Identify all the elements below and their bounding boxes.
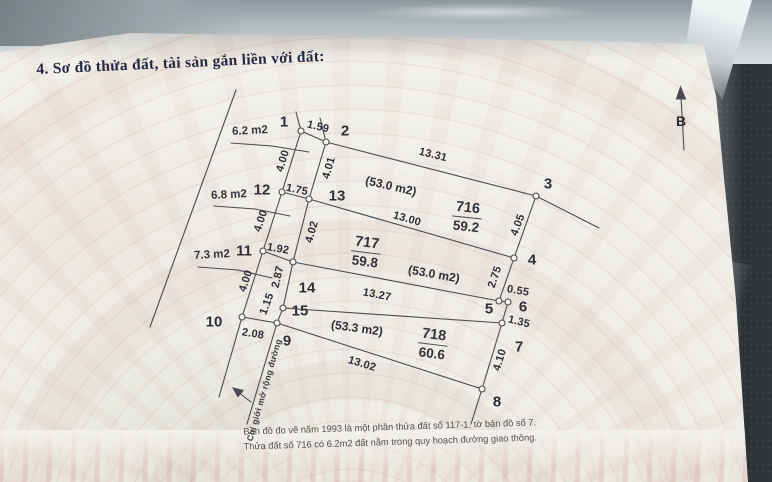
- vertex-label-11: 11: [236, 243, 252, 260]
- road-edge-line: [150, 90, 236, 327]
- vertex-label-5: 5: [485, 301, 493, 318]
- vertex-label-10: 10: [206, 314, 223, 331]
- north-arrow-head: [677, 87, 686, 99]
- vertex-label-3: 3: [544, 176, 552, 193]
- strip-area-716: 6.2 m2: [232, 124, 268, 138]
- photo-of-land-document: 4. Sơ đồ thửa đất, tài sản gắn liền với …: [0, 0, 772, 482]
- north-label: B: [676, 113, 686, 129]
- edge-15-7: [283, 308, 502, 323]
- vertex-label-7: 7: [515, 339, 523, 356]
- edge-14-5: [293, 262, 499, 301]
- edge-13-4: [309, 199, 514, 258]
- tie-10-9: [242, 317, 277, 323]
- vertex-label-8: 8: [493, 394, 501, 411]
- vertex-label-12: 12: [254, 182, 271, 199]
- vertex-label-6: 6: [519, 299, 527, 316]
- vertex-label-2: 2: [341, 123, 349, 140]
- parcel-716: 716 59.2: [450, 199, 484, 236]
- leader-7-3: [198, 267, 272, 278]
- vertex-label-15: 15: [292, 303, 309, 320]
- vertex-label-9: 9: [283, 333, 291, 350]
- vertex-label-13: 13: [329, 188, 346, 205]
- parcel-718: 718 60.6: [416, 325, 450, 362]
- strip-area-718: 7.3 m2: [194, 248, 230, 262]
- vertex-label-1: 1: [280, 114, 288, 131]
- vertex-label-4: 4: [528, 252, 536, 269]
- vertex-label-14: 14: [299, 280, 316, 297]
- parcel-717: 717 59.8: [349, 233, 383, 270]
- parcel-area: 59.2: [450, 216, 482, 235]
- parcel-diagram-lines: [0, 0, 772, 482]
- strip-area-717: 6.8 m2: [211, 188, 247, 202]
- leader-6-8: [214, 206, 290, 216]
